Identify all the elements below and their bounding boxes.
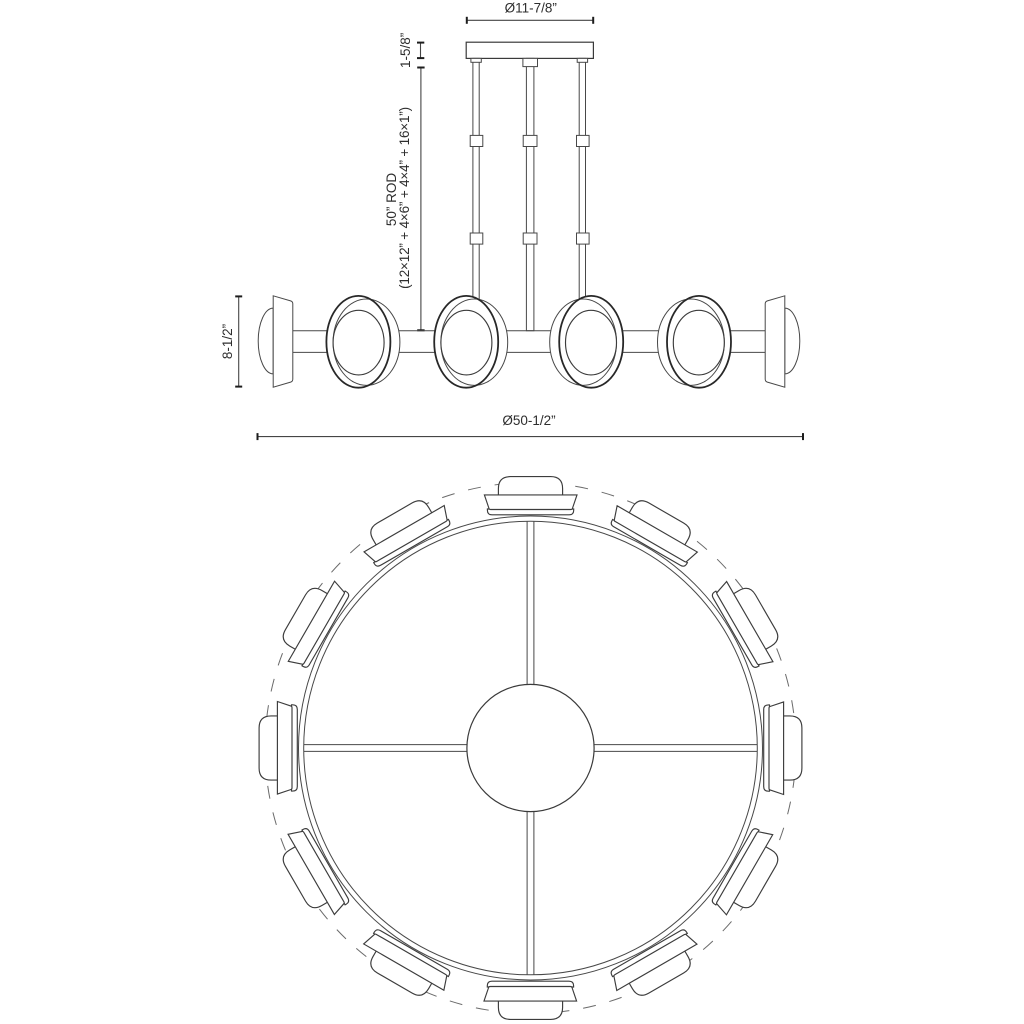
svg-text:1-5/8”: 1-5/8”	[398, 33, 413, 68]
svg-text:8-1/2”: 8-1/2”	[220, 324, 235, 359]
svg-text:Ø11-7/8”: Ø11-7/8”	[505, 1, 557, 16]
svg-text:(12×12” + 4×6” + 4×4” + 16×1”): (12×12” + 4×6” + 4×4” + 16×1”)	[397, 107, 412, 289]
svg-text:Ø50-1/2”: Ø50-1/2”	[502, 413, 555, 428]
